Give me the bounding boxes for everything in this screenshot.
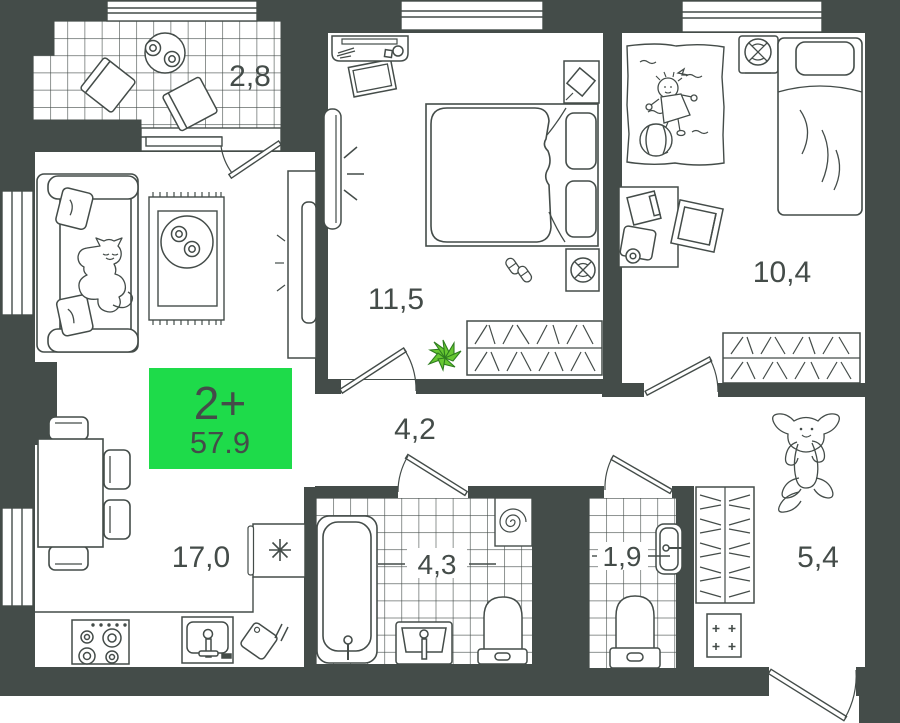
svg-text:10,4: 10,4 [753,256,811,289]
svg-text:5,4: 5,4 [797,541,839,574]
svg-text:4,2: 4,2 [394,413,436,446]
svg-text:1,9: 1,9 [603,541,642,572]
svg-text:11,5: 11,5 [368,283,424,316]
svg-text:57.9: 57.9 [190,425,250,460]
svg-text:2,8: 2,8 [229,60,271,93]
svg-text:4,3: 4,3 [418,549,457,580]
svg-text:2+: 2+ [194,377,246,429]
svg-text:17,0: 17,0 [172,541,230,574]
